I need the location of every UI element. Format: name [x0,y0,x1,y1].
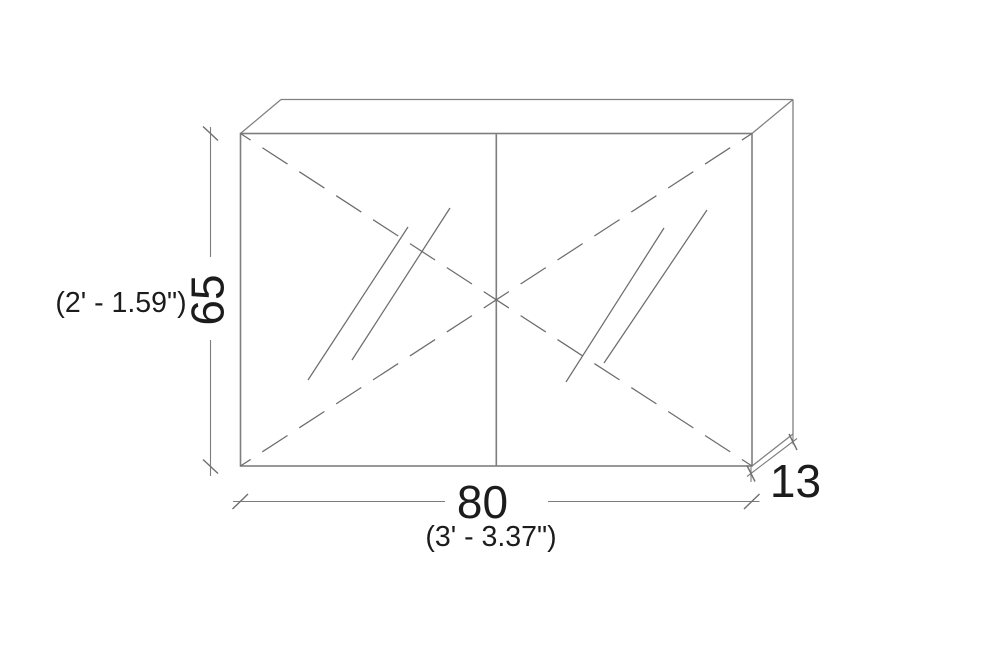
height-dimension-value: 65 [182,274,234,325]
swing-dash-ray-lower-right [496,300,752,466]
width-dimension-imperial: (3' - 3.37") [425,521,556,553]
swing-dash-ray-upper-left [241,134,497,300]
mirror-mark-line [604,210,707,363]
height-dimension-imperial: (2' - 1.59") [55,287,186,319]
left-door-mirror-marks [308,208,450,380]
mirror-mark-line [352,208,450,360]
mirror-mark-line [566,228,664,382]
height-dimension: 65 (2' - 1.59") [55,127,233,477]
cabinet-outline [241,100,794,467]
swing-dash-ray-lower-left [241,300,497,466]
right-door-mirror-marks [566,210,707,382]
width-dimension: 80 (3' - 3.37") [233,476,760,553]
cabinet-top-face [241,100,794,134]
top-right-connector-edge [752,100,793,134]
swing-dash-ray-upper-right [496,134,752,300]
depth-dimension-value: 13 [770,455,821,507]
mirror-mark-line [308,227,408,380]
technical-drawing-page: 65 (2' - 1.59") 80 (3' - 3.37") 13 [0,0,1000,647]
top-left-connector-edge [241,100,282,134]
cabinet-side-face [752,100,793,467]
cabinet-dimension-drawing: 65 (2' - 1.59") 80 (3' - 3.37") 13 [0,0,1000,647]
